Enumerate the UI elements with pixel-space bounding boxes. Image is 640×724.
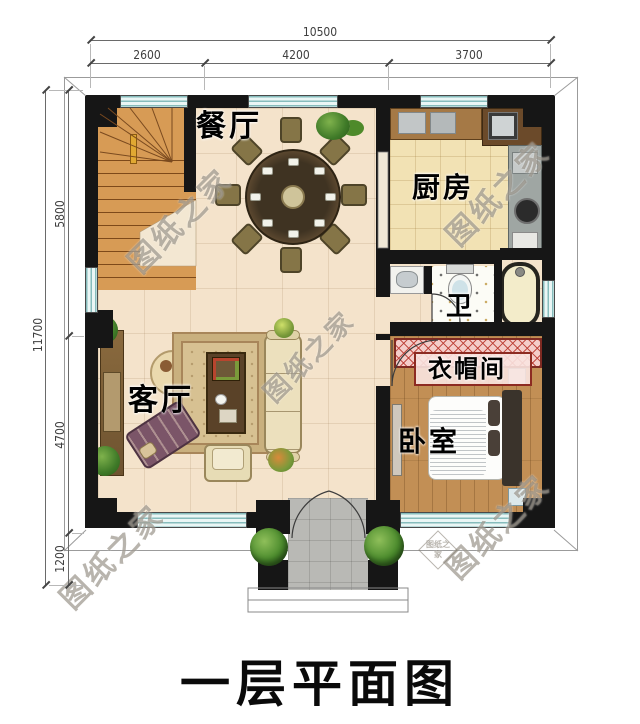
washbasin xyxy=(396,271,418,288)
dim-line-top-segments xyxy=(90,63,550,64)
plate xyxy=(262,219,273,227)
room-label-dining: 餐厅 xyxy=(196,112,262,142)
dim-top-total: 10500 xyxy=(296,25,344,39)
bed-pillow xyxy=(488,430,500,456)
plate xyxy=(288,230,299,238)
dim-left-seg-1: 5800 xyxy=(53,190,67,238)
dining-chair xyxy=(280,247,302,273)
plate xyxy=(288,158,299,166)
dim-guide xyxy=(550,44,551,88)
window xyxy=(248,95,338,108)
dim-left-seg-2: 4700 xyxy=(53,411,67,459)
dim-guide xyxy=(72,336,84,337)
dim-top-seg-2: 4200 xyxy=(272,48,320,62)
bush xyxy=(364,526,404,566)
window xyxy=(120,95,188,108)
dim-guide xyxy=(388,66,389,90)
dim-guide xyxy=(72,533,84,534)
bed-pillow xyxy=(488,400,500,426)
plate xyxy=(325,193,336,201)
plate xyxy=(262,167,273,175)
wall-bath-bottom xyxy=(390,322,542,336)
kitchen-appliance xyxy=(398,112,426,134)
room-label-living: 客厅 xyxy=(128,386,194,416)
wall-tub-divider xyxy=(494,252,502,322)
dim-left-seg-3: 1200 xyxy=(53,535,67,583)
pillar xyxy=(85,310,113,348)
dim-line-top-total xyxy=(90,40,550,41)
wall-kitchen-dining xyxy=(376,95,390,297)
pillar xyxy=(85,95,117,127)
watermark-diamond-text: 图纸之家 xyxy=(424,540,452,560)
dining-chair xyxy=(280,117,302,143)
dim-tick xyxy=(547,59,555,67)
window xyxy=(542,280,555,318)
porch-steps xyxy=(248,588,408,612)
window xyxy=(85,267,98,313)
wall-kitchen-bath xyxy=(376,250,502,264)
room-label-bathroom: 卫 xyxy=(446,294,475,320)
coffee-table-tray xyxy=(219,409,237,423)
wall-tub-kitchen xyxy=(500,248,542,260)
table-centerpiece xyxy=(281,185,305,209)
porch-floor xyxy=(288,498,368,590)
dim-tick xyxy=(547,36,555,44)
window xyxy=(420,95,488,108)
dim-top-seg-1: 2600 xyxy=(123,48,171,62)
side-table-decor xyxy=(160,360,172,372)
coffee-table-cup xyxy=(215,394,227,405)
dim-guide xyxy=(204,66,205,90)
dim-top-seg-3: 3700 xyxy=(445,48,493,62)
flower-pot xyxy=(268,448,294,472)
plant xyxy=(316,112,350,140)
wall-top xyxy=(188,95,248,108)
wall-living-bedroom xyxy=(376,386,390,512)
wall-bath-left xyxy=(424,266,432,294)
dim-left-total: 11700 xyxy=(31,311,45,359)
pillar xyxy=(523,95,555,127)
wall-living-bedroom xyxy=(376,334,390,340)
plate xyxy=(314,167,325,175)
kitchen-appliance xyxy=(430,112,456,134)
room-label-cloakroom: 衣帽间 xyxy=(428,357,506,381)
plate xyxy=(314,219,325,227)
dining-chair xyxy=(341,184,367,206)
dim-line-left-total xyxy=(45,90,46,586)
coffee-table-flowers xyxy=(212,357,240,381)
dim-line-left-segments xyxy=(68,90,69,586)
armchair-cushion xyxy=(212,448,244,470)
plate xyxy=(250,193,261,201)
floor-plan: 餐厅 厨房 卫 衣帽间 卧室 客厅 图纸之家 图纸之家 图纸之家 图纸之家 图纸… xyxy=(0,0,640,724)
bathtub-faucet xyxy=(515,267,525,277)
stair-newel xyxy=(130,134,137,164)
bush xyxy=(250,528,288,566)
dim-guide xyxy=(90,44,91,88)
tv-cabinet-center xyxy=(103,372,121,432)
plant-small xyxy=(274,318,294,338)
toilet-tank xyxy=(446,264,474,274)
stove-cooktop xyxy=(488,112,518,140)
page-title: 一层平面图 xyxy=(0,644,640,716)
kitchen-sink xyxy=(514,198,540,224)
room-label-bedroom: 卧室 xyxy=(398,428,460,456)
